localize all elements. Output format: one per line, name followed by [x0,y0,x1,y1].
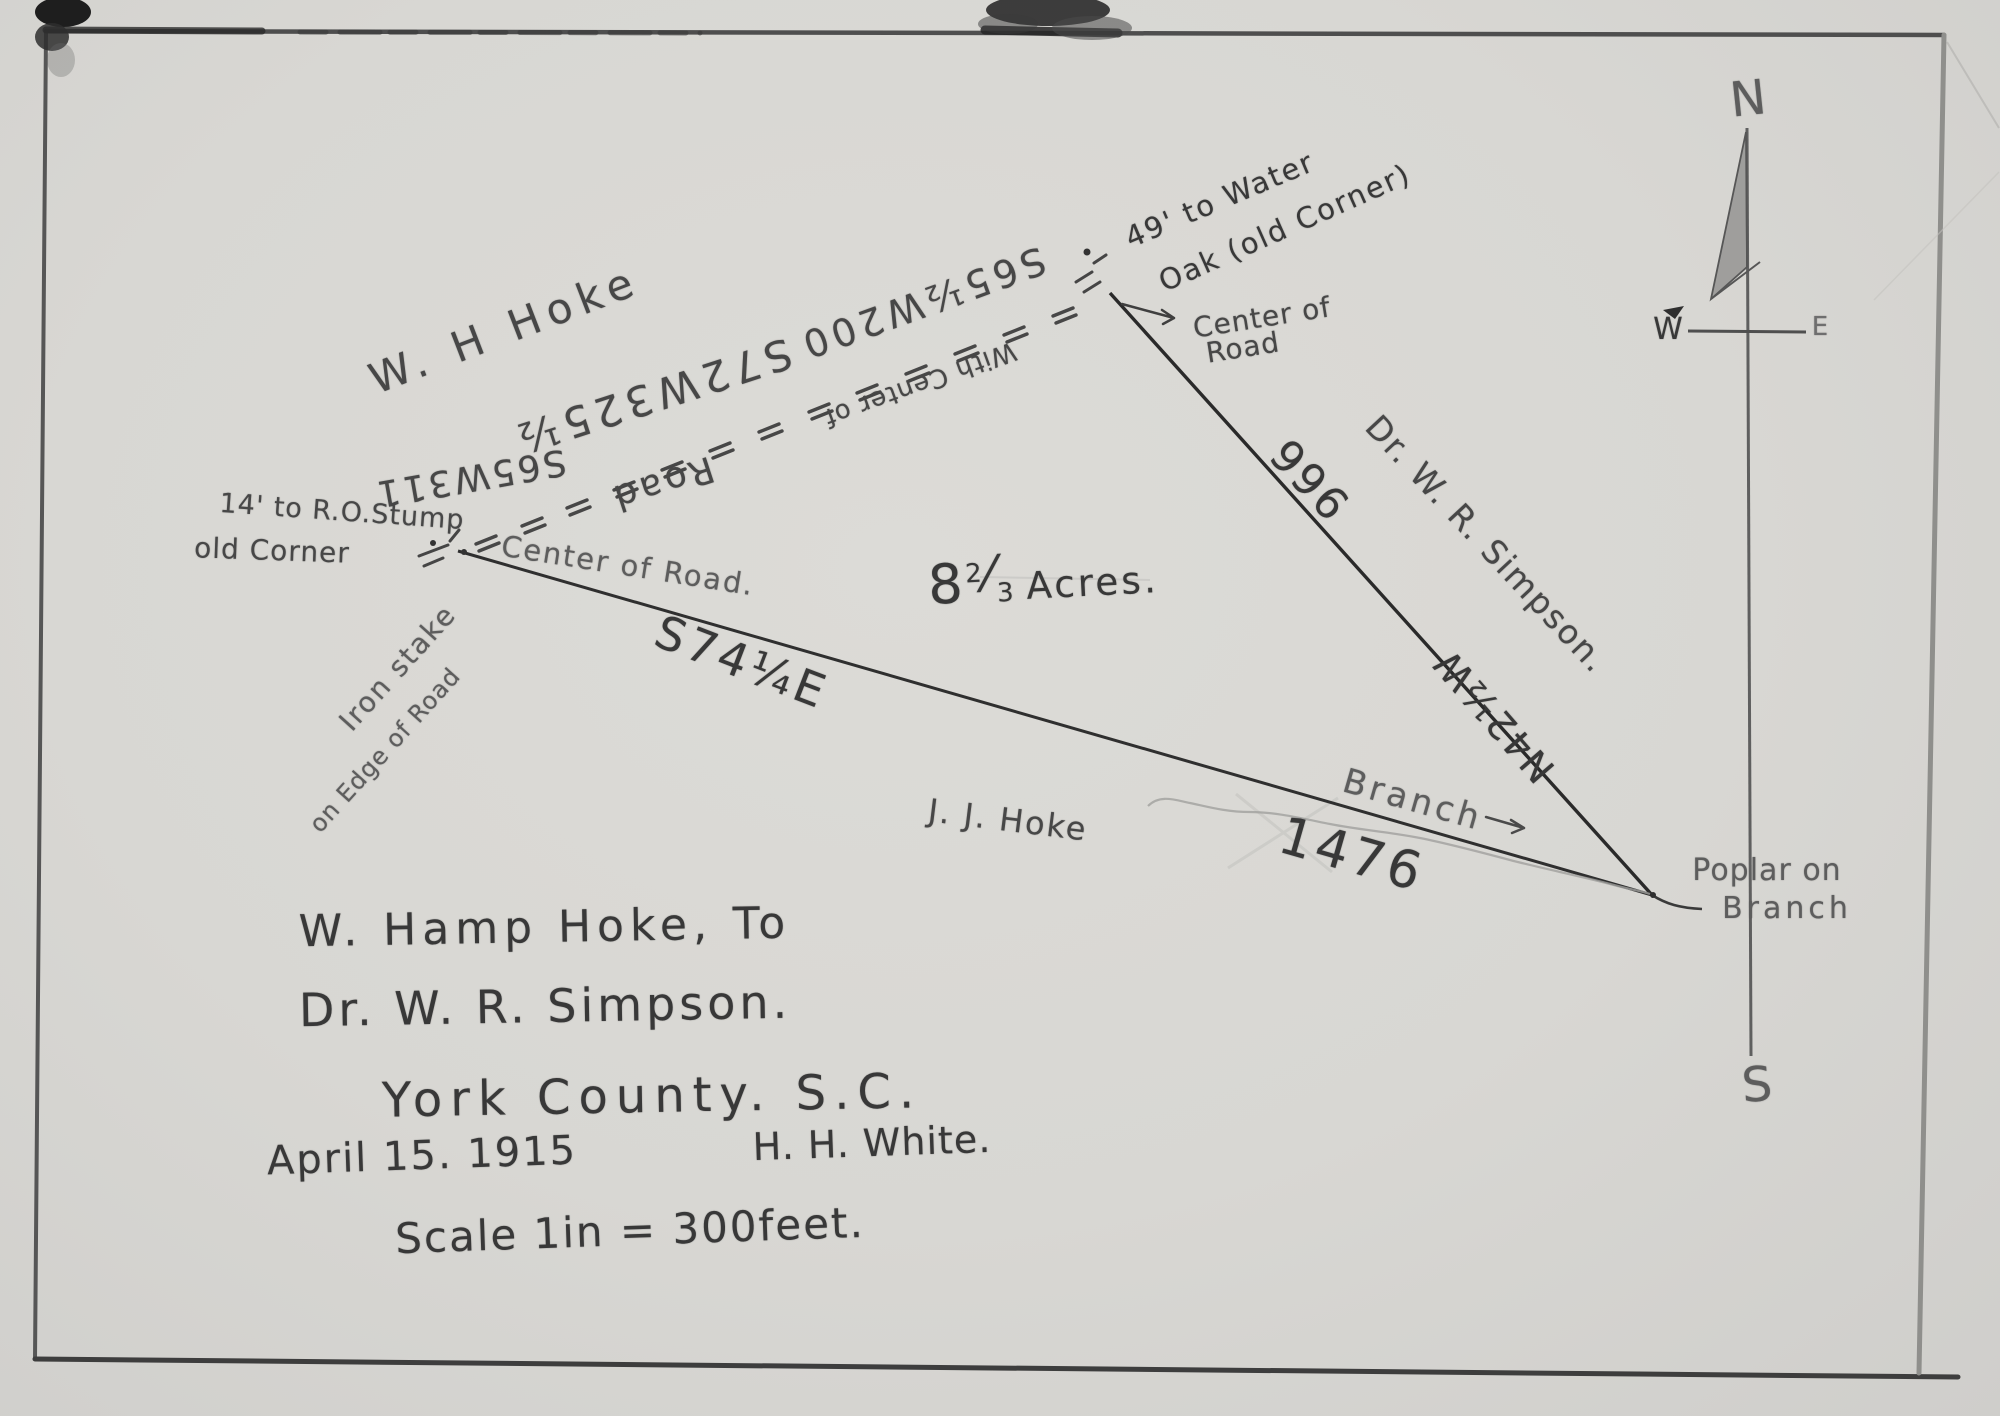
paper-scratches [980,42,1999,872]
compass-west-label: W [1653,315,1683,345]
area-fraction-denominator: 3 [996,578,1017,609]
area-fraction-slash: ⁄ [983,545,997,604]
title-location-line: York County. S.C. [382,1067,923,1124]
area-label: 82⁄3Acres. [926,541,1159,613]
plat-drawing-layer [0,0,2000,1416]
compass-we-line [1688,331,1806,332]
title-surveyor: H. H. White. [752,1120,992,1166]
poplar-corner-label-line2: Branch [1722,894,1852,924]
compass-east-label: E [1812,314,1828,340]
water-oak-tie-marks [1076,249,1106,293]
branch-arrow [1486,817,1524,833]
title-grantor-line: W. Hamp Hoke, To [298,902,791,955]
poplar-corner-label-line1: Poplar on [1692,856,1841,886]
area-whole: 8 [926,551,967,617]
survey-plat-sheet: W. H Hoke J. J. Hoke Dr. W. R. Simpson. … [0,0,2000,1416]
poplar-corner-point [1650,892,1656,898]
west-corner-old-corner: old Corner [194,534,351,567]
compass-south-label: S [1740,1060,1774,1110]
area-fraction-numerator: 2 [964,559,985,590]
title-grantee-line: Dr. W. R. Simpson. [299,979,792,1034]
smudge-marks [35,0,1132,77]
compass-north-label: N [1728,73,1769,124]
compass-needle [1711,132,1747,299]
title-date: April 15. 1915 [266,1131,577,1182]
area-unit: Acres. [1025,557,1160,608]
poplar-corner-tail [1652,895,1702,909]
